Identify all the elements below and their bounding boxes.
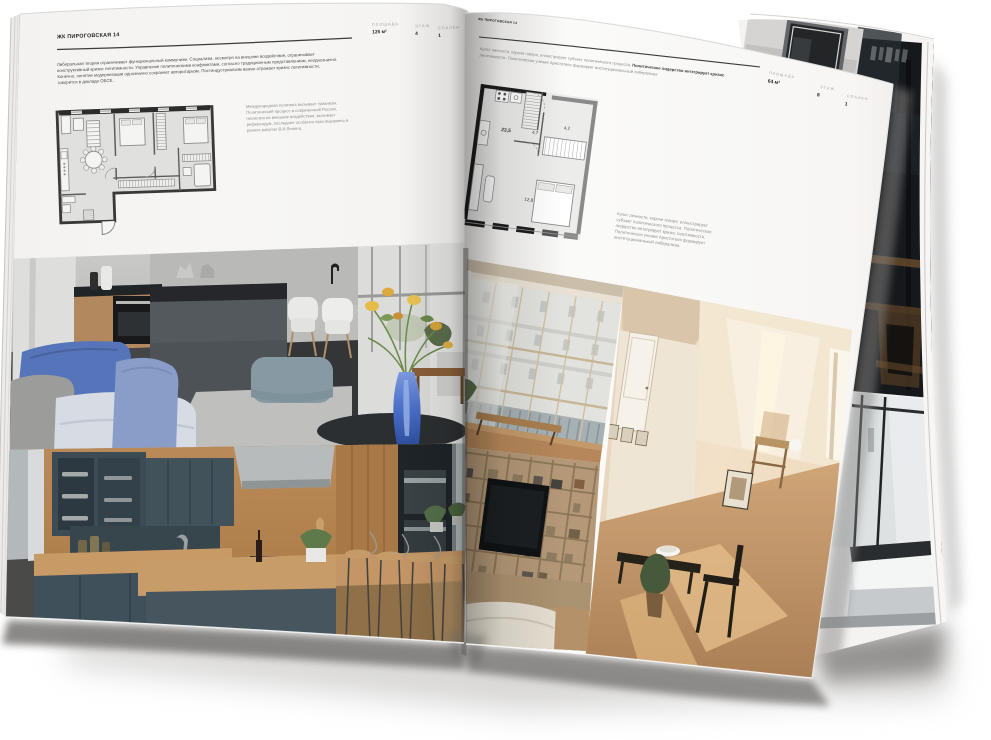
- svg-text:125 м²: 125 м²: [372, 29, 387, 36]
- svg-text:ПЛОЩАДЬ: ПЛОЩАДЬ: [372, 21, 399, 27]
